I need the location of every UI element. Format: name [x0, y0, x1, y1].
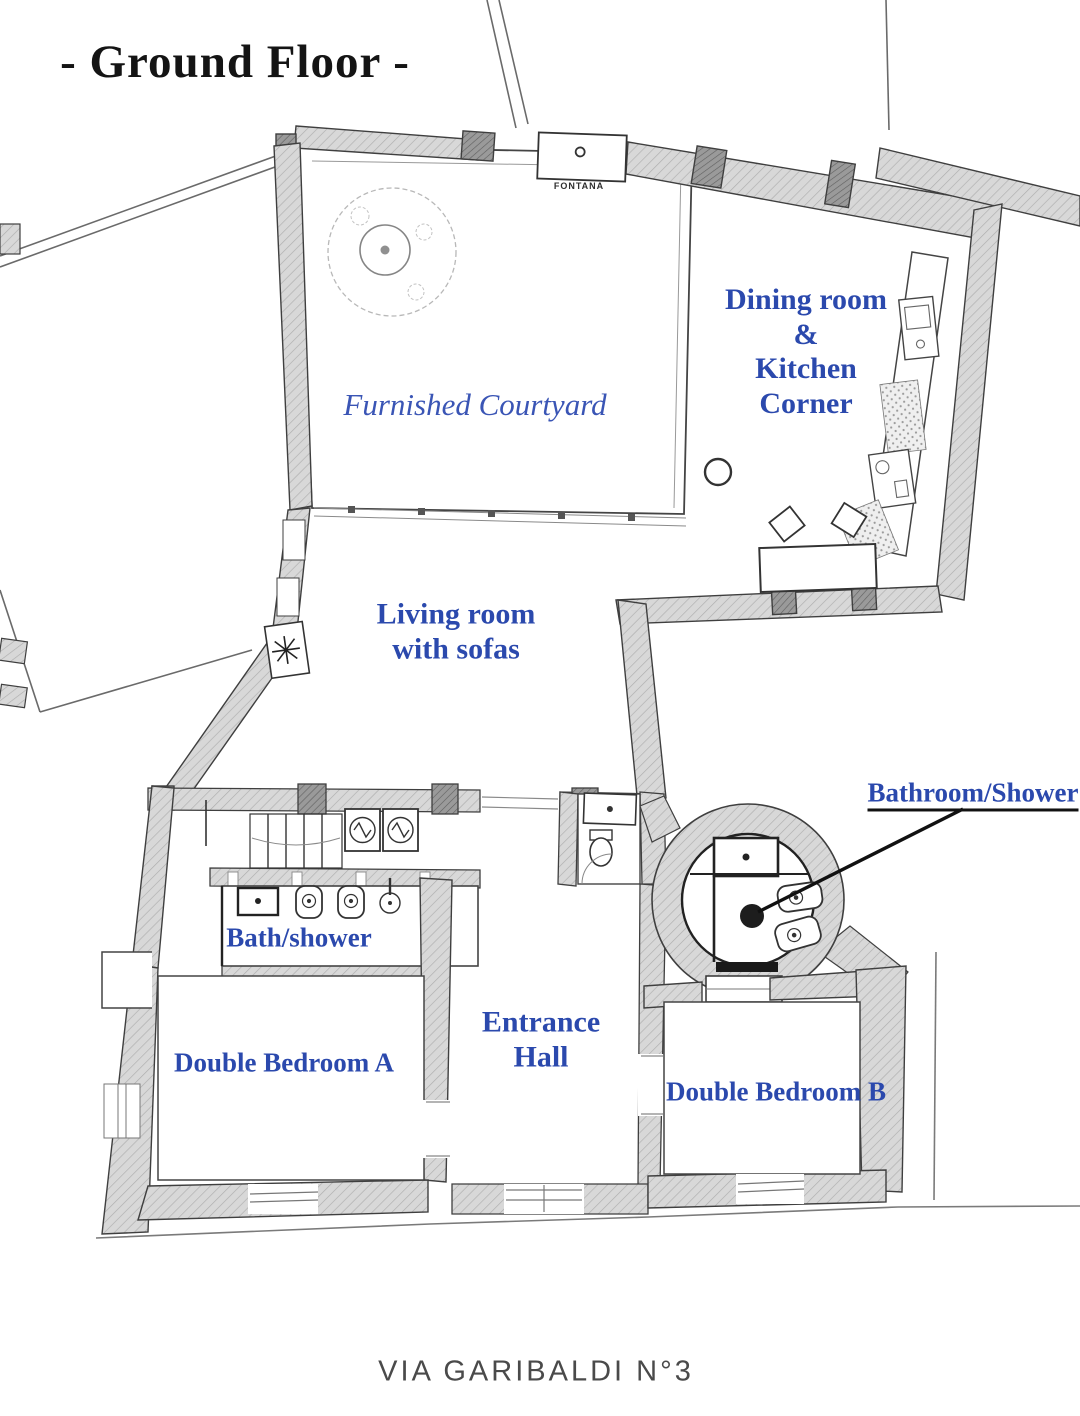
edge-wall-fragments [0, 224, 27, 708]
sink-icon [714, 838, 778, 876]
dining-table-icon [759, 503, 876, 592]
room-label-courtyard: Furnished Courtyard [343, 387, 606, 423]
column-icon [705, 459, 731, 485]
floor-plan-drawing [0, 0, 1080, 1416]
floor-plan-page: - Ground Floor - Furnished Courtyard Din… [0, 0, 1080, 1416]
fountain-label: FONTANA [554, 181, 604, 191]
toilet-icon [776, 881, 823, 913]
room-label-living: Living room with sofas [377, 598, 536, 667]
sink-icon [583, 793, 636, 825]
room-label-bath-shower: Bath/shower [226, 922, 372, 953]
planter-niche [265, 621, 310, 678]
chair-icon [769, 507, 804, 542]
door-bedroom-a [422, 1100, 454, 1158]
fountain-icon [537, 132, 627, 181]
room-label-round-bathroom: Bathroom/Shower [867, 777, 1078, 808]
window-bedroom-a-south [248, 1184, 318, 1214]
stove-icon [869, 449, 916, 508]
street-address-label: VIA GARIBALDI N°3 [378, 1356, 694, 1389]
room-label-bedroom-b: Double Bedroom B [666, 1076, 886, 1107]
shower-tray-icon [238, 888, 278, 915]
page-title: - Ground Floor - [60, 35, 410, 89]
sink-icon [899, 297, 939, 360]
bathroom-door-threshold [716, 962, 778, 972]
room-label-bedroom-a: Double Bedroom A [174, 1047, 394, 1078]
window-bedroom-a-west [104, 1084, 140, 1138]
door-threshold-living-hall [482, 797, 558, 809]
entrance-door [504, 1184, 584, 1214]
window-bedroom-b-south [736, 1174, 804, 1204]
courtyard-room [296, 146, 692, 526]
pointer-target-dot [740, 904, 764, 928]
room-label-dining-kitchen: Dining room & Kitchen Corner [725, 283, 887, 421]
left-niche [102, 952, 152, 1008]
washing-machine-icon [345, 809, 418, 851]
room-label-entrance-hall: Entrance Hall [482, 1006, 600, 1075]
